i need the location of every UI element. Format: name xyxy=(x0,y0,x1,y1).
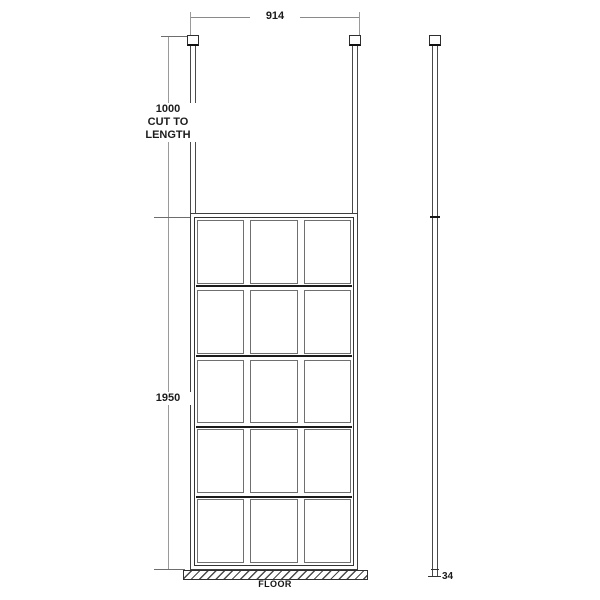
side-floor-level-line xyxy=(431,569,439,570)
transom-bar xyxy=(196,496,352,498)
dimension-tick-panel-top xyxy=(154,217,190,218)
panel-inner-frame xyxy=(194,217,354,566)
glass-pane xyxy=(304,290,351,354)
glass-pane xyxy=(304,429,351,493)
transom-bar xyxy=(196,285,352,287)
technical-drawing-canvas: 914 1000 CUT TO LENGTH 1950 FLOOR 34 xyxy=(0,0,600,600)
side-bottom-tick xyxy=(428,576,441,577)
width-dimension-label: 914 xyxy=(250,10,300,23)
transom-bar xyxy=(196,355,352,357)
dimension-tick-post-top xyxy=(161,36,190,37)
post-cut-text-2: LENGTH xyxy=(128,129,208,142)
glass-pane xyxy=(250,360,297,424)
glass-pane xyxy=(304,499,351,563)
glass-pane xyxy=(250,499,297,563)
left-post-ceiling-bracket xyxy=(187,35,199,46)
glass-pane xyxy=(197,360,244,424)
post-length-value: 1000 xyxy=(128,103,208,116)
glass-pane xyxy=(304,220,351,284)
right-post-ceiling-bracket xyxy=(349,35,361,46)
depth-dimension-label: 34 xyxy=(442,571,453,582)
post-cut-length-label: 1000 CUT TO LENGTH xyxy=(128,103,208,142)
glass-pane xyxy=(197,429,244,493)
glass-pane xyxy=(197,290,244,354)
side-profile-bar xyxy=(432,45,438,577)
glass-pane xyxy=(250,290,297,354)
post-cut-text-1: CUT TO xyxy=(128,116,208,129)
transom-bar xyxy=(196,426,352,428)
width-dimension-extension-right xyxy=(359,12,360,35)
glass-pane-grid xyxy=(197,220,351,563)
side-panel-junction-line xyxy=(430,216,440,218)
side-post-ceiling-bracket xyxy=(429,35,441,46)
panel-height-label: 1950 xyxy=(143,392,193,405)
right-support-post xyxy=(352,45,358,213)
width-dimension-extension-left xyxy=(190,12,191,35)
glass-pane xyxy=(250,220,297,284)
floor-label: FLOOR xyxy=(235,579,315,589)
glass-pane xyxy=(197,499,244,563)
glass-pane xyxy=(304,360,351,424)
dimension-tick-floor xyxy=(154,569,185,570)
floor-hatch-bar xyxy=(183,570,368,580)
glass-pane xyxy=(197,220,244,284)
shower-screen-panel xyxy=(190,213,358,570)
glass-pane xyxy=(250,429,297,493)
